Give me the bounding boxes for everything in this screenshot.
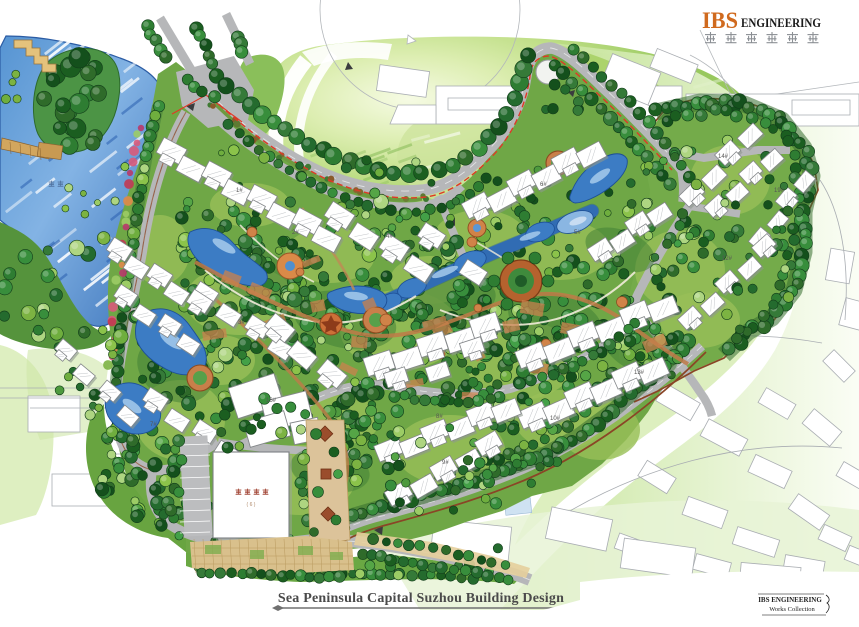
svg-text:9#: 9# (442, 460, 449, 466)
svg-text:ENGINEERING: ENGINEERING (741, 16, 821, 30)
svg-text:16#: 16# (266, 398, 277, 404)
svg-text:IBS: IBS (702, 8, 738, 33)
svg-text:1#: 1# (236, 188, 243, 194)
svg-text:3#: 3# (238, 320, 245, 326)
svg-text:Sea Peninsula Capital Suzhou B: Sea Peninsula Capital Suzhou Building De… (278, 591, 564, 606)
svg-text:19#: 19# (774, 188, 785, 194)
svg-text:8#: 8# (436, 414, 443, 420)
svg-text:6#: 6# (540, 182, 547, 188)
svg-text:12#: 12# (722, 256, 733, 262)
svg-text:IBS ENGINEERING: IBS ENGINEERING (758, 596, 822, 604)
svg-text:10#: 10# (550, 416, 561, 422)
svg-text:( 6 ): ( 6 ) (247, 502, 256, 508)
svg-text:2#: 2# (292, 230, 299, 236)
svg-text:5#: 5# (574, 230, 581, 236)
svg-text:4#: 4# (386, 234, 393, 240)
svg-text:14#: 14# (718, 154, 729, 160)
svg-text:7#: 7# (150, 422, 157, 428)
svg-text:13#: 13# (634, 370, 645, 376)
svg-text:Works Collection: Works Collection (769, 606, 815, 613)
